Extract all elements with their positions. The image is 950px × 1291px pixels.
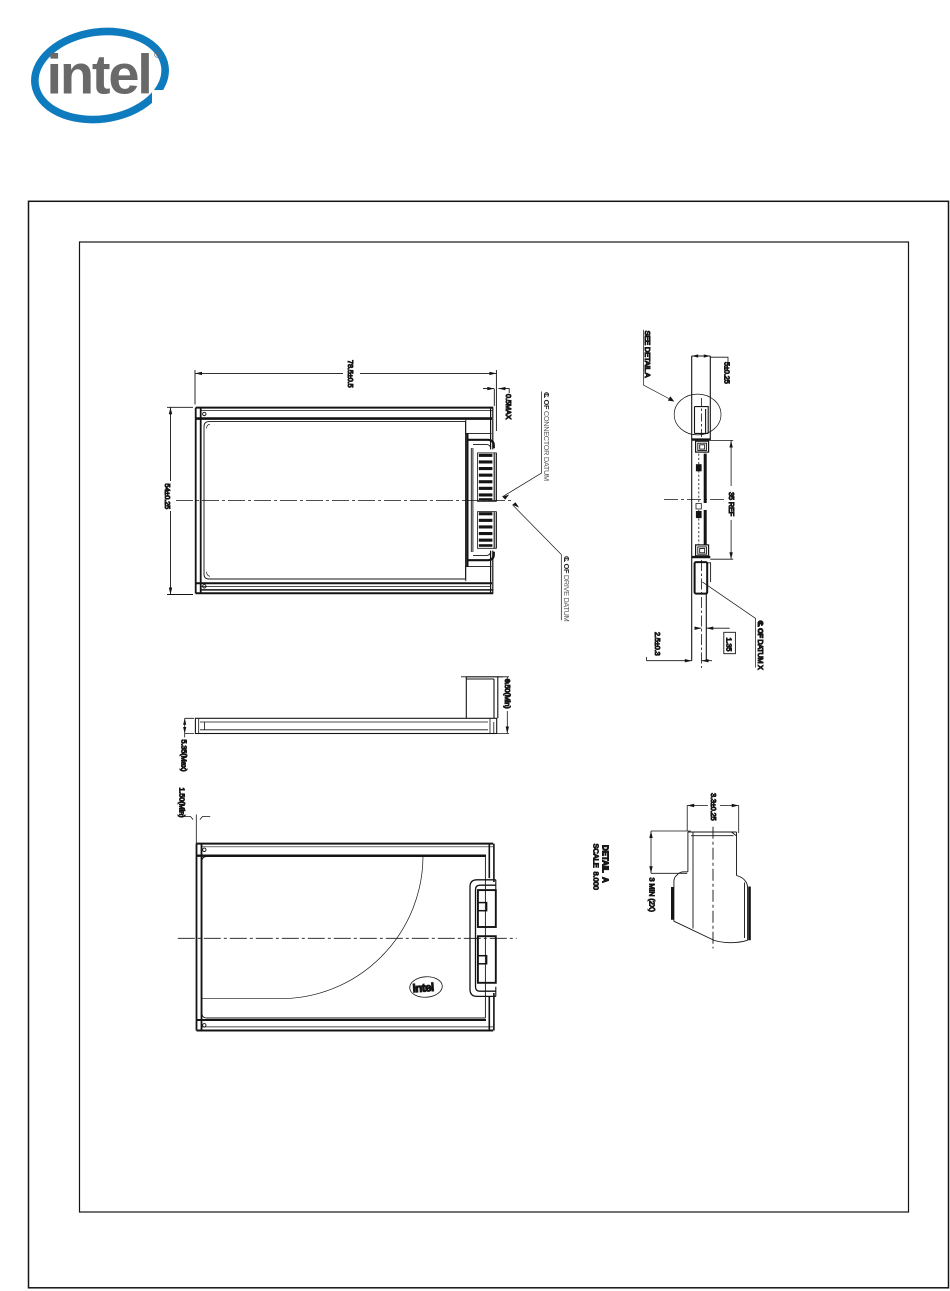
svg-text:SCALE 8.000: SCALE 8.000 [592, 844, 601, 890]
svg-text:3 MIN (2X): 3 MIN (2X) [648, 878, 657, 912]
svg-text:35 REF: 35 REF [727, 492, 736, 517]
svg-text:5±0.25: 5±0.25 [723, 362, 732, 384]
svg-text:2.5±0.3: 2.5±0.3 [653, 632, 662, 656]
svg-text:CL OF DATUM X: CL OF DATUM X [756, 621, 765, 671]
svg-text:DETAIL A: DETAIL A [601, 845, 610, 883]
svg-text:SEE DETAIL A: SEE DETAIL A [643, 331, 652, 379]
svg-text:78.5±0.5: 78.5±0.5 [346, 360, 355, 388]
svg-text:3.3±0.25: 3.3±0.25 [709, 793, 718, 821]
svg-text:6.50(Min): 6.50(Min) [503, 679, 512, 709]
svg-text:CL OF CONNECTOR DATUM: CL OF CONNECTOR DATUM [542, 392, 551, 481]
svg-text:1.50(Min): 1.50(Min) [178, 788, 187, 818]
svg-text:intel: intel [412, 982, 434, 995]
svg-text:®: ® [154, 49, 162, 61]
svg-text:0.5MAX: 0.5MAX [504, 394, 513, 420]
svg-text:1.35: 1.35 [725, 638, 734, 652]
svg-text:intel: intel [47, 43, 151, 106]
svg-text:CL OF DRIVE DATUM: CL OF DRIVE DATUM [562, 556, 571, 622]
svg-text:5.35(Max): 5.35(Max) [180, 740, 189, 772]
svg-text:54±0.25: 54±0.25 [163, 484, 172, 510]
